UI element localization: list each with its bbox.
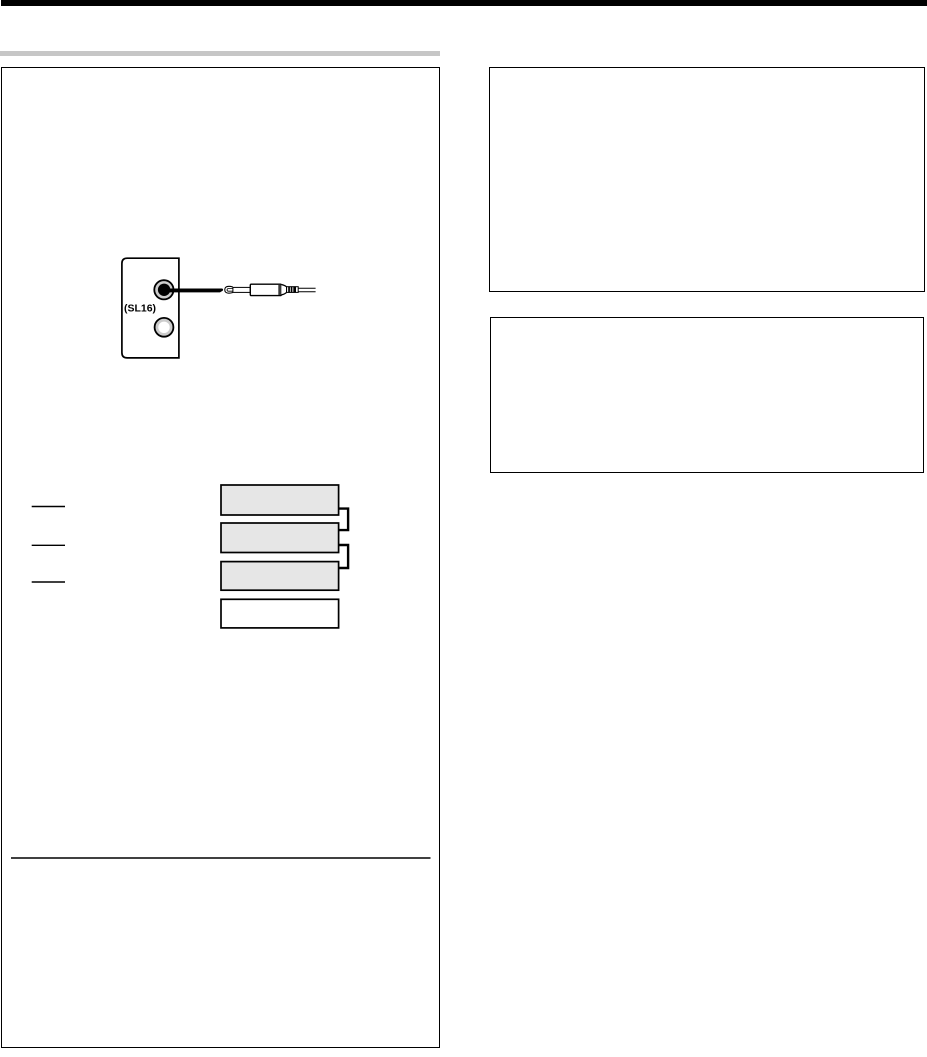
svg-text:(SL16): (SL16) [124,304,156,315]
